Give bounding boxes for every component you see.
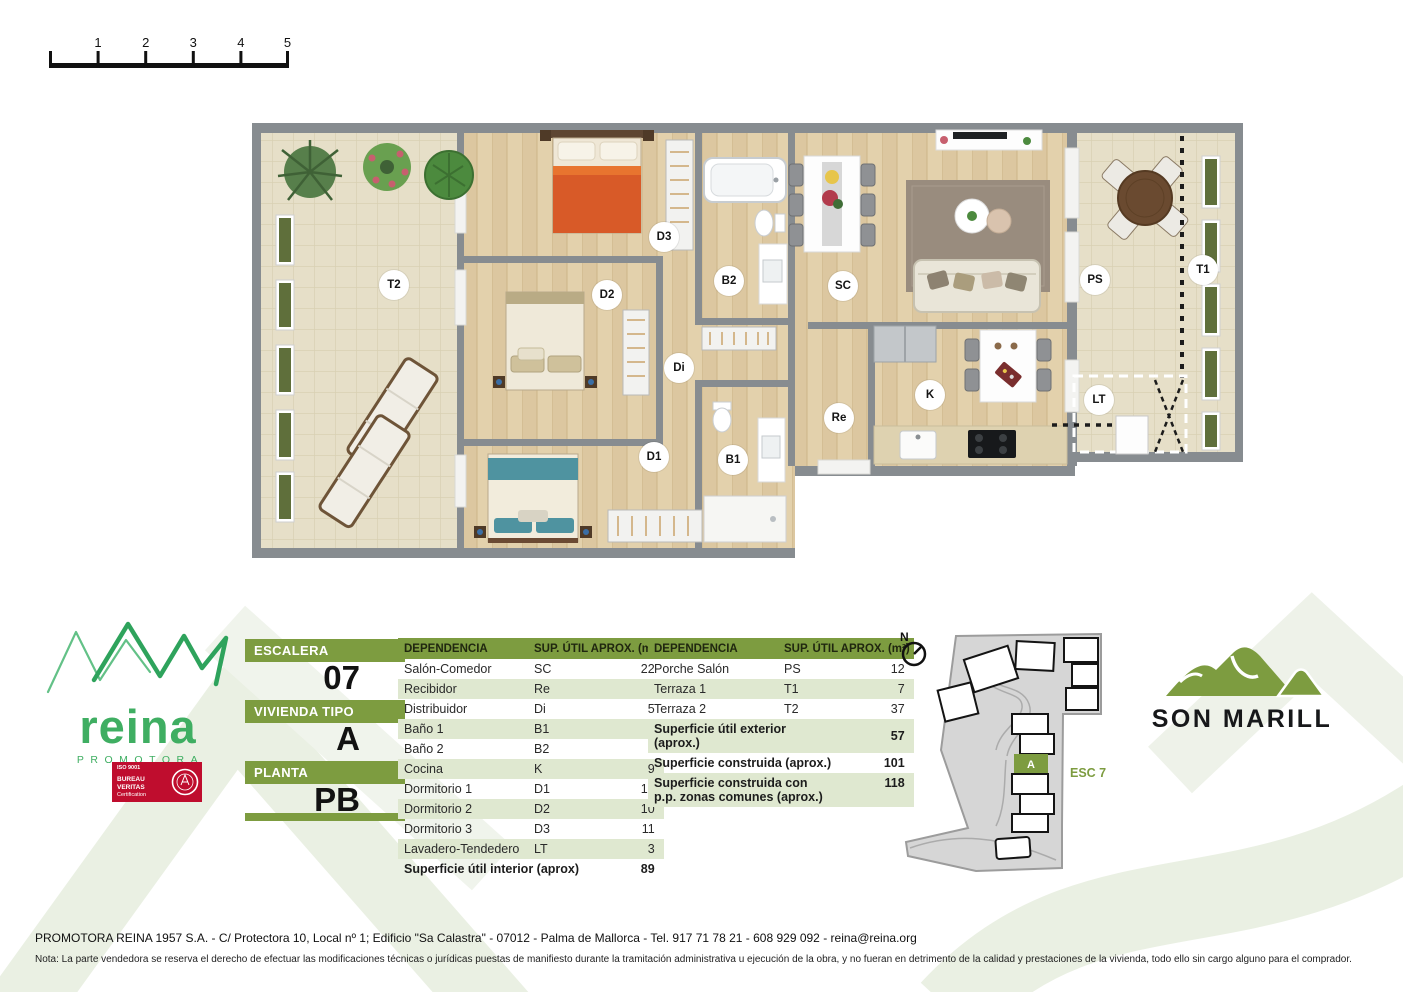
table-row: DistribuidorDi5 [398, 699, 664, 719]
room-label-b1: B1 [718, 445, 748, 475]
bush-plant [425, 151, 473, 199]
svg-text:3: 3 [190, 35, 197, 50]
reina-logo: reina PROMOTORA [36, 610, 240, 766]
esc-label: ESC 7 [1070, 766, 1106, 780]
table-row: Baño 1B14 [398, 719, 664, 739]
room-label-t1: T1 [1188, 255, 1218, 285]
room-label-re: Re [824, 403, 854, 433]
summary-row: Superficie construida (aprox.)101 [648, 753, 914, 773]
unit-a-label: A [1027, 759, 1035, 771]
reina-logo-mark [38, 610, 238, 702]
floor-plan-drawing [252, 120, 1243, 560]
ruler-baseline [49, 63, 289, 68]
mountain-icon [1136, 642, 1348, 698]
table-row: Terraza 2T237 [648, 699, 914, 719]
table-row: Terraza 1T17 [648, 679, 914, 699]
bureau-veritas-badge: ISO 9001 BUREAU VERITAS Certification [112, 762, 202, 802]
table-row: Dormitorio 3D311 [398, 819, 664, 839]
reina-wordmark: reina [36, 707, 240, 747]
room-label-d1: D1 [639, 442, 669, 472]
summary-row: Superficie construida con p.p. zonas com… [648, 773, 914, 807]
son-marill-wordmark: SON MARILL [1136, 705, 1348, 734]
floor-plan: T2 D3 D2 B2 SC PS T1 Di Re K D1 B1 LT [252, 120, 1243, 560]
vivienda-tipo-box: VIVIENDA TIPO [245, 700, 405, 723]
vivienda-tipo-value: A [245, 722, 360, 755]
table-row: Salón-ComedorSC22 [398, 659, 664, 679]
svg-text:1: 1 [94, 35, 101, 50]
badge-org-label: BUREAU VERITAS [117, 776, 168, 792]
badge-seal-icon [168, 765, 202, 799]
table-row: Lavadero-TendederoLT3 [398, 839, 664, 859]
bedroom-d2-furniture [493, 292, 597, 390]
compass-needle [914, 646, 922, 654]
table-row: CocinaK9 [398, 759, 664, 779]
svg-text:4: 4 [237, 35, 244, 50]
table-row: Baño 2B25 [398, 739, 664, 759]
terrace-t2-planters [276, 215, 294, 522]
son-marill-logo: SON MARILL [1136, 642, 1348, 734]
svg-text:5: 5 [284, 35, 291, 50]
scale-ruler: 1 2 3 4 5 [45, 33, 295, 75]
brochure-page: 1 2 3 4 5 [0, 0, 1403, 992]
summary-row: Superficie útil exterior (aprox.)57 [648, 719, 914, 753]
room-label-sc: SC [828, 271, 858, 301]
table-row: Dormitorio 2D210 [398, 799, 664, 819]
table-footer-row: Superficie útil interior (aprox) 89 [398, 859, 664, 879]
room-label-ps: PS [1080, 265, 1110, 295]
room-label-di: Di [664, 353, 694, 383]
room-label-b2: B2 [714, 266, 744, 296]
interior-surfaces-table: DEPENDENCIA SUP. ÚTIL APROX. (m²) Salón-… [398, 638, 664, 879]
exterior-surfaces-table: DEPENDENCIA SUP. ÚTIL APROX. (m²) Porche… [648, 638, 914, 807]
badge-text: ISO 9001 BUREAU VERITAS Certification [112, 765, 168, 799]
badge-iso-label: ISO 9001 [117, 765, 168, 772]
footer-contact-line: PROMOTORA REINA 1957 S.A. - C/ Protector… [35, 931, 917, 945]
ruler-numbers: 1 2 3 4 5 [94, 35, 291, 50]
table-row: RecibidorRe3 [398, 679, 664, 699]
room-label-lt: LT [1084, 385, 1114, 415]
planta-value: PB [245, 783, 360, 816]
table-row: Porche SalónPS12 [648, 659, 914, 679]
room-label-t2: T2 [379, 270, 409, 300]
svg-text:2: 2 [142, 35, 149, 50]
green-divider-bar [245, 813, 405, 821]
badge-cert-label: Certification [117, 792, 168, 799]
footer-legal-note: Nota: La parte vendedora se reserva el d… [35, 954, 1352, 965]
table-header: DEPENDENCIA SUP. ÚTIL APROX. (m²) [398, 638, 664, 659]
site-plan: A N ESC 7 [896, 630, 1126, 880]
table-header: DEPENDENCIA SUP. ÚTIL APROX. (m²) [648, 638, 914, 659]
room-label-k: K [915, 380, 945, 410]
table-row: Dormitorio 1D114 [398, 779, 664, 799]
room-label-d3: D3 [649, 222, 679, 252]
bedroom-d1-furniture [474, 454, 592, 543]
escalera-value: 07 [245, 661, 360, 694]
flowering-plant [363, 143, 411, 191]
north-label: N [900, 630, 909, 644]
room-label-d2: D2 [592, 280, 622, 310]
